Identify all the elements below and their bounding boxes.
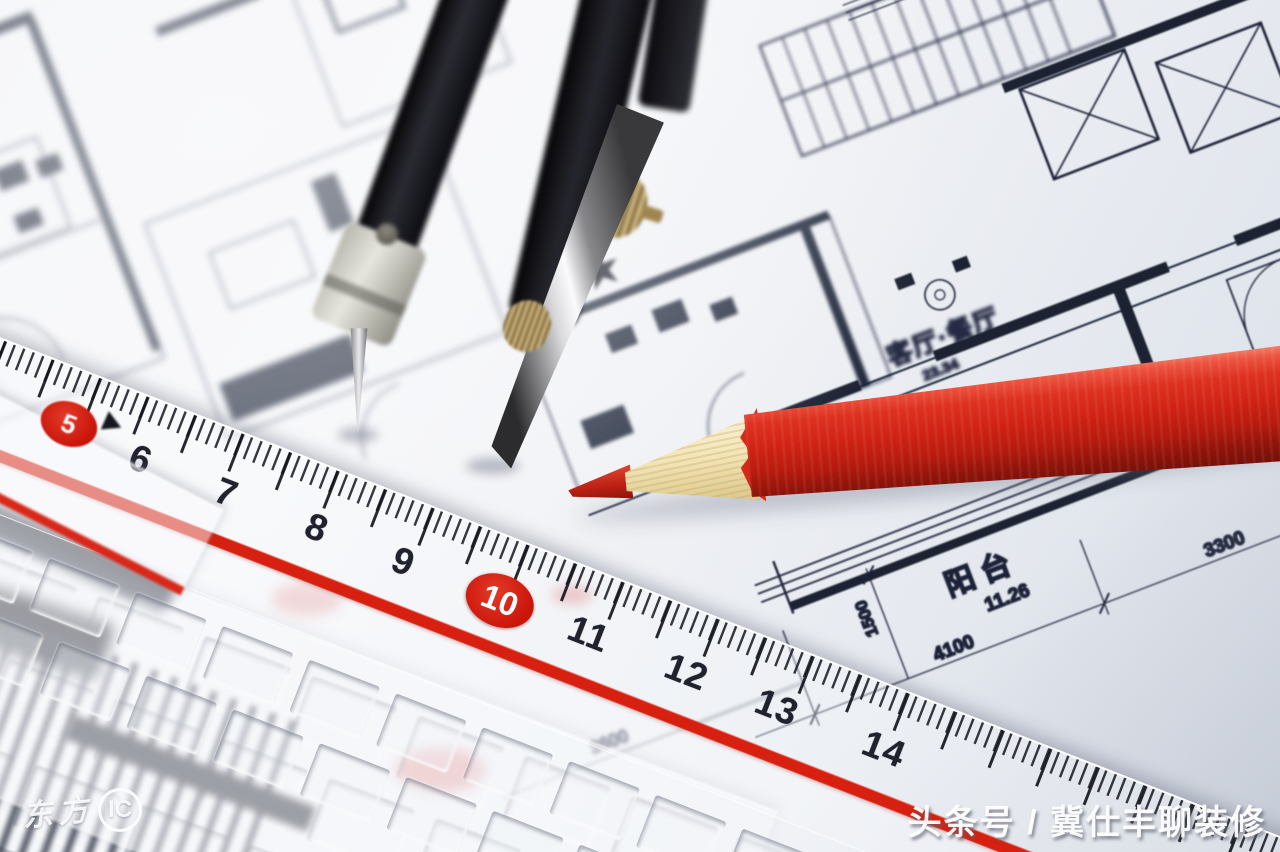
photo-scene: 客厅·餐厅 23.34 3600 bbox=[0, 0, 1280, 852]
stencil-hole bbox=[0, 524, 34, 604]
stencil-hole bbox=[0, 608, 44, 688]
stencil-hole bbox=[29, 558, 120, 638]
ruler-number: 5 bbox=[57, 407, 81, 440]
watermark: 东方 IC bbox=[22, 788, 142, 832]
watermark-badge-text: IC bbox=[108, 796, 132, 824]
stencil-hole bbox=[289, 660, 380, 740]
watermark-script-text: 东方 bbox=[20, 784, 96, 835]
stencil-hole bbox=[462, 727, 553, 807]
watermark-ic-badge: IC bbox=[98, 788, 142, 832]
stencil-hole bbox=[473, 811, 564, 852]
credit-text: 头条号 / 冀仕丰聊装修 bbox=[908, 795, 1266, 844]
stencil-hole bbox=[386, 777, 477, 852]
stencil-hole bbox=[549, 761, 640, 841]
stencil-hole bbox=[40, 642, 131, 722]
stencil-hole bbox=[376, 693, 467, 773]
stencil-hole bbox=[722, 828, 813, 852]
stencil-hole bbox=[636, 795, 727, 852]
stencil-hole bbox=[299, 743, 390, 823]
stencil-hole bbox=[202, 626, 293, 706]
stencil-hole bbox=[116, 592, 207, 672]
stencil-hole bbox=[126, 675, 217, 755]
pencil-lead-tip bbox=[566, 464, 633, 504]
hinge-band bbox=[322, 273, 406, 316]
stencil-hole bbox=[213, 709, 304, 789]
